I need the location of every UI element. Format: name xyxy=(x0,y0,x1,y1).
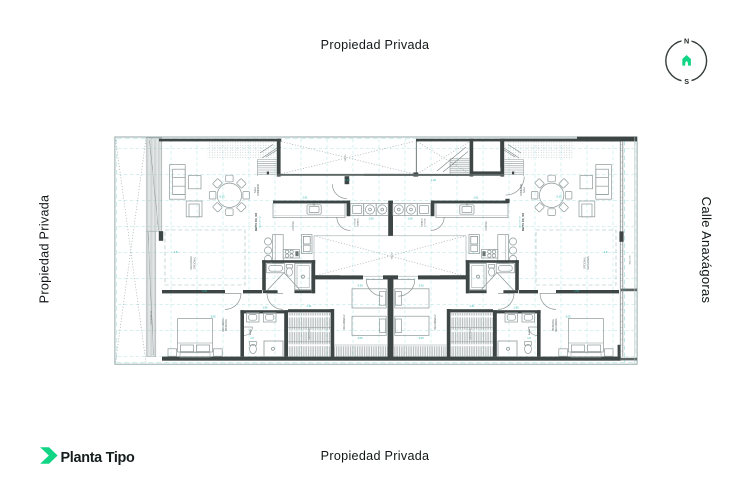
svg-text:DEPTO 301_303: DEPTO 301_303 xyxy=(255,212,258,231)
svg-text:COCINA: COCINA xyxy=(485,221,488,231)
svg-text:3.05: 3.05 xyxy=(357,336,363,340)
svg-text:1.41: 1.41 xyxy=(306,304,312,308)
svg-text:LAVADO: LAVADO xyxy=(420,218,423,227)
svg-text:LAVADO: LAVADO xyxy=(357,218,360,227)
svg-text:CTO DE: CTO DE xyxy=(425,218,427,227)
svg-text:N: N xyxy=(684,37,689,46)
svg-text:DEPTO 301_303: DEPTO 301_303 xyxy=(522,212,525,231)
svg-text:VESTIDOR: VESTIDOR xyxy=(309,328,311,340)
svg-text:A 113.57 m2: A 113.57 m2 xyxy=(519,216,522,228)
svg-text:CTO DE: CTO DE xyxy=(355,218,357,227)
svg-text:1.95: 1.95 xyxy=(513,306,519,310)
svg-text:RECAMARA: RECAMARA xyxy=(587,256,590,270)
svg-text:1.20: 1.20 xyxy=(345,178,351,182)
svg-text:Calle Anaxágoras: Calle Anaxágoras xyxy=(699,197,714,304)
svg-text:RECAMARA: RECAMARA xyxy=(555,318,558,331)
svg-text:VESTIDOR: VESTIDOR xyxy=(470,328,472,340)
svg-text:2.61: 2.61 xyxy=(473,196,479,200)
svg-text:1.5: 1.5 xyxy=(527,336,531,340)
svg-text:BAÑO: BAÑO xyxy=(528,329,531,335)
svg-text:RECAMARA: RECAMARA xyxy=(222,318,225,331)
svg-text:SALA: SALA xyxy=(254,187,257,193)
svg-text:2.8: 2.8 xyxy=(604,250,608,254)
svg-text:OPCIONAL: OPCIONAL xyxy=(194,256,197,269)
svg-text:1.95: 1.95 xyxy=(262,306,268,310)
svg-text:3.05: 3.05 xyxy=(565,314,571,318)
svg-text:VACIO: VACIO xyxy=(344,154,347,161)
svg-text:A 113.57 m2: A 113.57 m2 xyxy=(258,216,261,228)
svg-text:SALA: SALA xyxy=(523,187,526,193)
svg-text:3.55: 3.55 xyxy=(202,289,208,293)
svg-text:BAÑO: BAÑO xyxy=(249,329,252,335)
svg-text:3.30: 3.30 xyxy=(418,284,424,288)
svg-text:1.5: 1.5 xyxy=(250,336,254,340)
svg-text:3.05: 3.05 xyxy=(418,336,424,340)
svg-text:2.8: 2.8 xyxy=(174,250,178,254)
svg-text:COMEDOR: COMEDOR xyxy=(521,184,523,196)
svg-text:1.66: 1.66 xyxy=(407,217,413,221)
svg-text:COMEDOR: COMEDOR xyxy=(258,184,260,196)
svg-text:6.15: 6.15 xyxy=(219,194,225,198)
svg-text:3.05: 3.05 xyxy=(210,314,216,318)
svg-text:COLINDANCIA: COLINDANCIA xyxy=(150,311,153,325)
svg-text:BALCÓN: BALCÓN xyxy=(629,255,632,264)
svg-text:S: S xyxy=(684,77,689,86)
svg-text:Planta Tipo: Planta Tipo xyxy=(61,450,136,466)
svg-text:1.20: 1.20 xyxy=(431,178,437,182)
svg-text:OPCIONAL: OPCIONAL xyxy=(584,256,587,269)
svg-text:Propiedad Privada: Propiedad Privada xyxy=(321,449,430,463)
svg-text:3.55: 3.55 xyxy=(574,289,580,293)
svg-text:1.41: 1.41 xyxy=(469,304,475,308)
svg-text:RECAMARA 2: RECAMARA 2 xyxy=(343,314,346,330)
svg-text:PRINCIPAL: PRINCIPAL xyxy=(225,318,228,331)
svg-text:6.15: 6.15 xyxy=(556,194,562,198)
svg-text:2.61: 2.61 xyxy=(302,196,308,200)
svg-text:3.30: 3.30 xyxy=(357,284,363,288)
svg-text:1.66: 1.66 xyxy=(368,217,374,221)
svg-text:Propiedad Privada: Propiedad Privada xyxy=(321,38,430,52)
svg-text:PRINCIPAL: PRINCIPAL xyxy=(552,318,555,331)
svg-text:COCINA: COCINA xyxy=(292,221,295,231)
svg-text:RECAMARA 2: RECAMARA 2 xyxy=(434,314,437,330)
svg-text:VACIO: VACIO xyxy=(391,252,394,259)
svg-text:Propiedad Privada: Propiedad Privada xyxy=(38,195,52,304)
